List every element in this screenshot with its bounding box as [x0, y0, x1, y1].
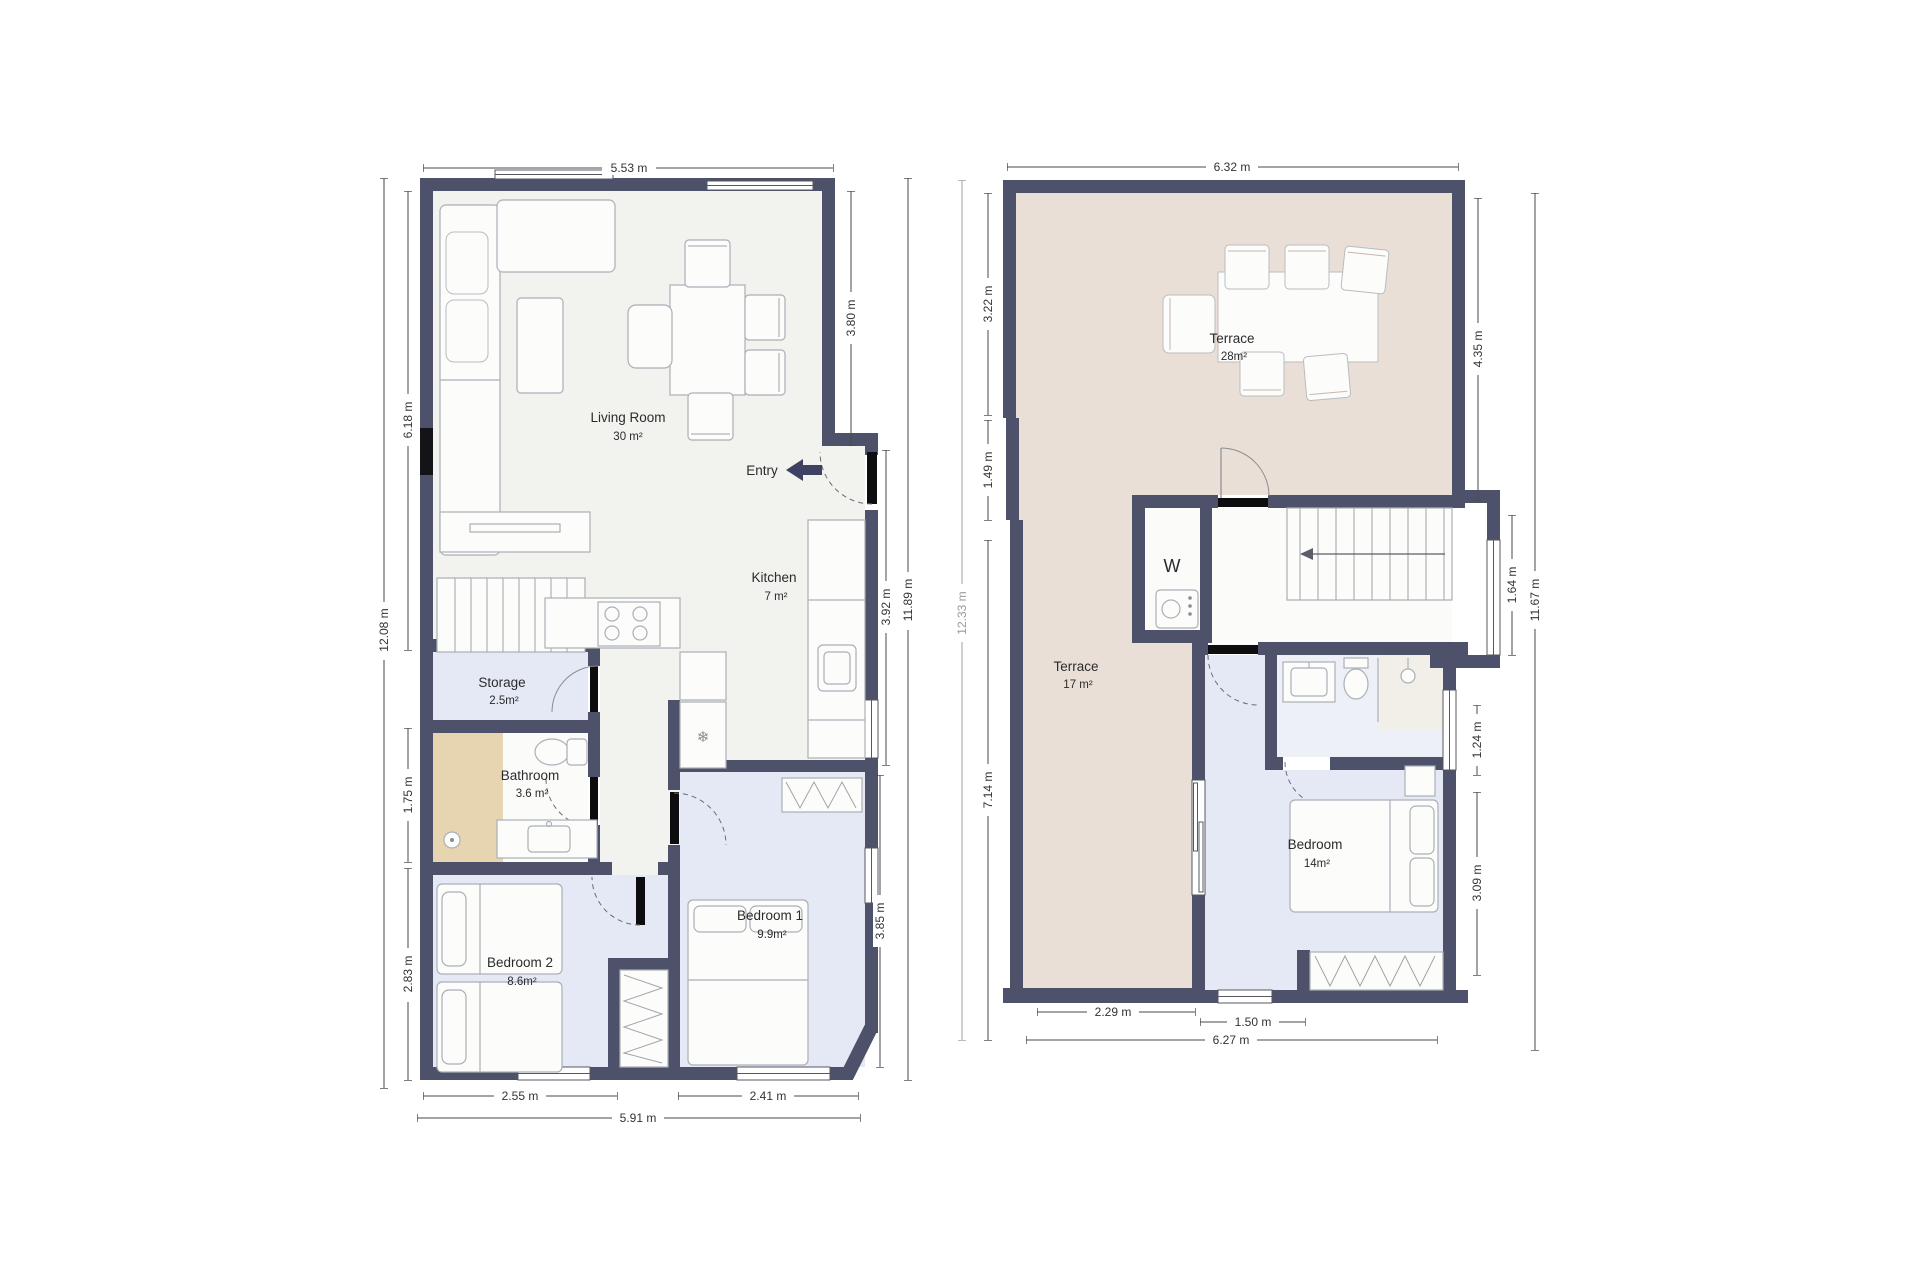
dim-left-total: 12.08 m	[377, 608, 391, 651]
dim-right-living: 3.80 m	[844, 300, 858, 337]
terrace-lower-area: 17 m²	[1063, 679, 1093, 691]
bedroom1-door-leaf	[670, 792, 679, 844]
upper-bedroom-name: Bedroom	[1288, 837, 1343, 852]
upper-wardrobe	[1310, 952, 1443, 990]
kitchen-area: 7 m²	[765, 591, 788, 603]
stair-bedroom-door-leaf	[1208, 645, 1258, 654]
ground-floor-plan: ❄	[377, 161, 915, 1125]
entry-door-leaf	[867, 452, 877, 504]
terrace-stair-door-leaf	[1218, 498, 1268, 507]
bedroom1-area: 9.9m²	[757, 929, 787, 941]
dim-r-bedroom: 3.09 m	[1470, 865, 1484, 902]
chaise-lounge	[497, 200, 615, 272]
dim-left-beds: 2.83 m	[401, 956, 415, 993]
dim-r-left-upper: 3.22 m	[981, 286, 995, 323]
dim-r-left-lower: 7.14 m	[981, 772, 995, 809]
dim-bottom-bed2: 2.55 m	[502, 1089, 539, 1103]
storage-door-leaf	[590, 666, 598, 712]
kitchen-cabinet	[680, 652, 726, 700]
dim-r-right-total: 11.67 m	[1528, 579, 1542, 621]
entry-label: Entry	[746, 463, 778, 478]
dim-right-kitchen: 3.92 m	[879, 589, 893, 626]
washer-label: W	[1164, 556, 1181, 576]
upper-toilet	[1344, 669, 1368, 699]
dim-r-bottom-terrace: 2.29 m	[1095, 1005, 1132, 1019]
dim-r-left-total: 12.33 m	[955, 591, 969, 634]
terrace-upper-name: Terrace	[1209, 331, 1254, 346]
dining-table	[670, 285, 745, 395]
dim-r-bottom-total: 6.27 m	[1213, 1033, 1250, 1047]
terrace-upper-area: 28m²	[1221, 351, 1247, 363]
bedroom2-door-leaf	[636, 877, 645, 925]
upper-floor-plan: W	[955, 160, 1542, 1050]
toilet	[535, 739, 569, 765]
dim-bottom-bed1: 2.41 m	[750, 1089, 787, 1103]
dim-r-bottom-window: 1.50 m	[1235, 1015, 1272, 1029]
floorplan-canvas: ❄	[0, 0, 1920, 1280]
bedroom1-closet	[782, 778, 862, 812]
upper-staircase	[1287, 508, 1452, 600]
living-room-area: 30 m²	[613, 431, 643, 443]
dim-bottom-total: 5.91 m	[620, 1111, 657, 1125]
nightstand	[1405, 766, 1435, 796]
bedroom1-name: Bedroom 1	[737, 908, 803, 923]
floorplan-drawing: ❄	[0, 0, 1920, 1280]
dim-r-bathwin: 1.24 m	[1470, 722, 1484, 759]
dim-left-living: 6.18 m	[401, 402, 415, 439]
bathroom-name: Bathroom	[501, 768, 560, 783]
living-room-name: Living Room	[590, 410, 665, 425]
storage-area: 2.5m²	[489, 695, 519, 707]
dim-r-right-terrace: 4.35 m	[1471, 331, 1485, 368]
terrace-lower-name: Terrace	[1053, 659, 1098, 674]
shared-closet	[620, 970, 668, 1067]
dim-right-bed1: 3.85 m	[873, 903, 887, 940]
dim-r-left-mid: 1.49 m	[981, 452, 995, 489]
kitchen-counter-right	[808, 520, 865, 758]
upper-bedroom-area: 14m²	[1304, 858, 1330, 870]
dim-r-stairwin: 1.64 m	[1505, 567, 1519, 604]
kitchen-name: Kitchen	[751, 570, 796, 585]
upper-shower-head	[1401, 669, 1415, 683]
dim-right-total: 11.89 m	[901, 579, 915, 621]
terrace-armchair	[1163, 295, 1215, 353]
bedroom2-name: Bedroom 2	[487, 955, 553, 970]
bathroom-area: 3.6 m²	[516, 788, 549, 800]
upper-bedroom-furniture	[1290, 766, 1443, 990]
dim-top: 5.53 m	[611, 161, 648, 175]
bathroom-shower-floor	[433, 733, 503, 862]
dim-left-bath: 1.75 m	[401, 777, 415, 814]
dim-r-top: 6.32 m	[1214, 160, 1251, 174]
snowflake-icon: ❄	[697, 729, 710, 746]
terrace-sliding-door	[1192, 780, 1205, 895]
armchair	[628, 305, 672, 368]
storage-name: Storage	[478, 675, 525, 690]
living-left-window	[420, 428, 433, 475]
coffee-table	[517, 298, 563, 393]
bathroom-door-leaf	[590, 777, 598, 825]
bedroom2-area: 8.6m²	[507, 976, 537, 988]
